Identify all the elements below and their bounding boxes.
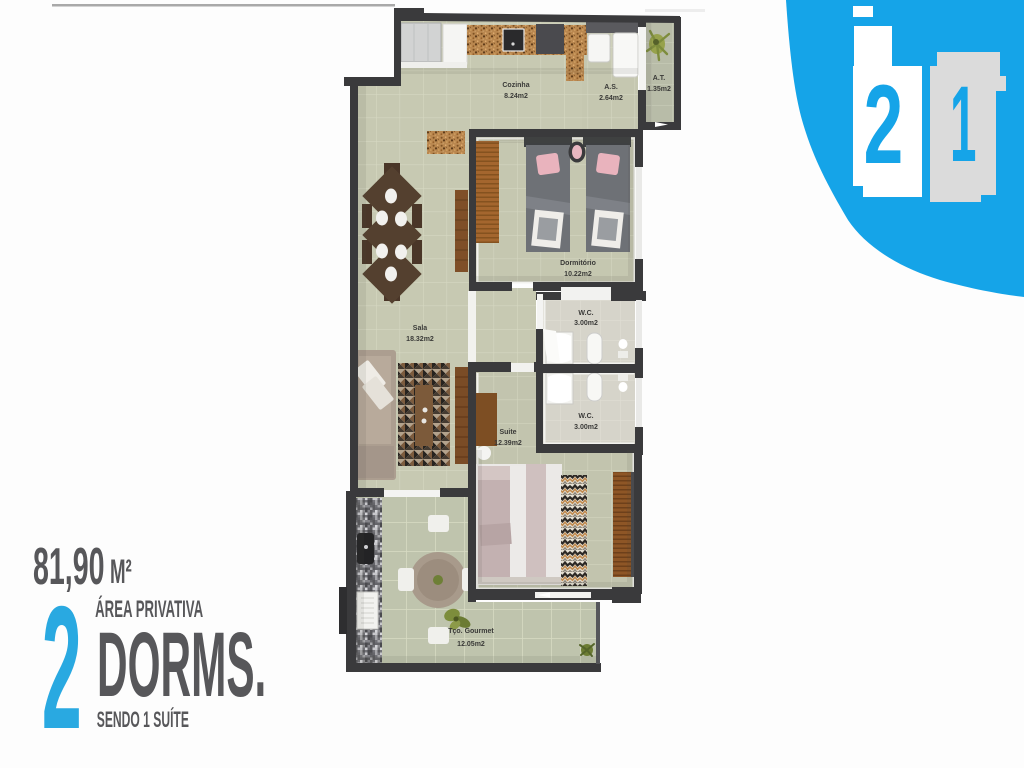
- svg-text:2: 2: [864, 62, 904, 187]
- svg-text:A.T.: A.T.: [653, 75, 666, 82]
- svg-text:Sala: Sala: [413, 325, 428, 332]
- svg-text:3.00m2: 3.00m2: [574, 320, 598, 327]
- svg-text:Suite: Suite: [499, 429, 516, 436]
- svg-text:A.S.: A.S.: [604, 84, 618, 91]
- svg-text:SENDO 1 SUÍTE: SENDO 1 SUÍTE: [97, 706, 189, 732]
- svg-text:Tço. Gourmet: Tço. Gourmet: [448, 628, 494, 635]
- svg-text:12.05m2: 12.05m2: [457, 641, 485, 648]
- svg-text:3.00m2: 3.00m2: [574, 424, 598, 431]
- svg-text:1.35m2: 1.35m2: [647, 86, 671, 93]
- svg-text:8.24m2: 8.24m2: [504, 93, 528, 100]
- svg-text:DORMS.: DORMS.: [97, 614, 266, 717]
- svg-text:10.22m2: 10.22m2: [564, 271, 592, 278]
- svg-text:Cozinha: Cozinha: [502, 82, 529, 89]
- svg-text:1: 1: [950, 63, 976, 185]
- svg-text:2.64m2: 2.64m2: [599, 95, 623, 102]
- svg-text:M²: M²: [110, 552, 132, 590]
- svg-text:W.C.: W.C.: [578, 310, 593, 317]
- svg-text:Dormitório: Dormitório: [560, 260, 596, 267]
- svg-text:W.C.: W.C.: [578, 413, 593, 420]
- svg-text:2: 2: [42, 571, 82, 766]
- svg-text:12.39m2: 12.39m2: [494, 440, 522, 447]
- svg-text:18.32m2: 18.32m2: [406, 336, 434, 343]
